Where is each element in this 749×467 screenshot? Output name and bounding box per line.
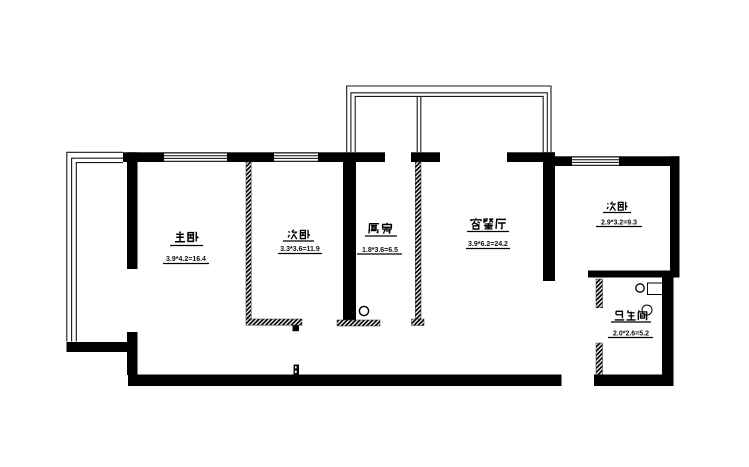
svg-text:2.0*2.6=5.2: 2.0*2.6=5.2 bbox=[613, 331, 649, 338]
svg-text:3.3*3.6=11.9: 3.3*3.6=11.9 bbox=[280, 246, 320, 253]
svg-text:2.9*3.2=9.3: 2.9*3.2=9.3 bbox=[601, 220, 637, 227]
svg-text:3.9*4.2=16.4: 3.9*4.2=16.4 bbox=[166, 256, 206, 263]
svg-text:1.8*3.6=6.5: 1.8*3.6=6.5 bbox=[362, 247, 398, 254]
svg-text:3.9*6.2=24.2: 3.9*6.2=24.2 bbox=[468, 241, 508, 248]
